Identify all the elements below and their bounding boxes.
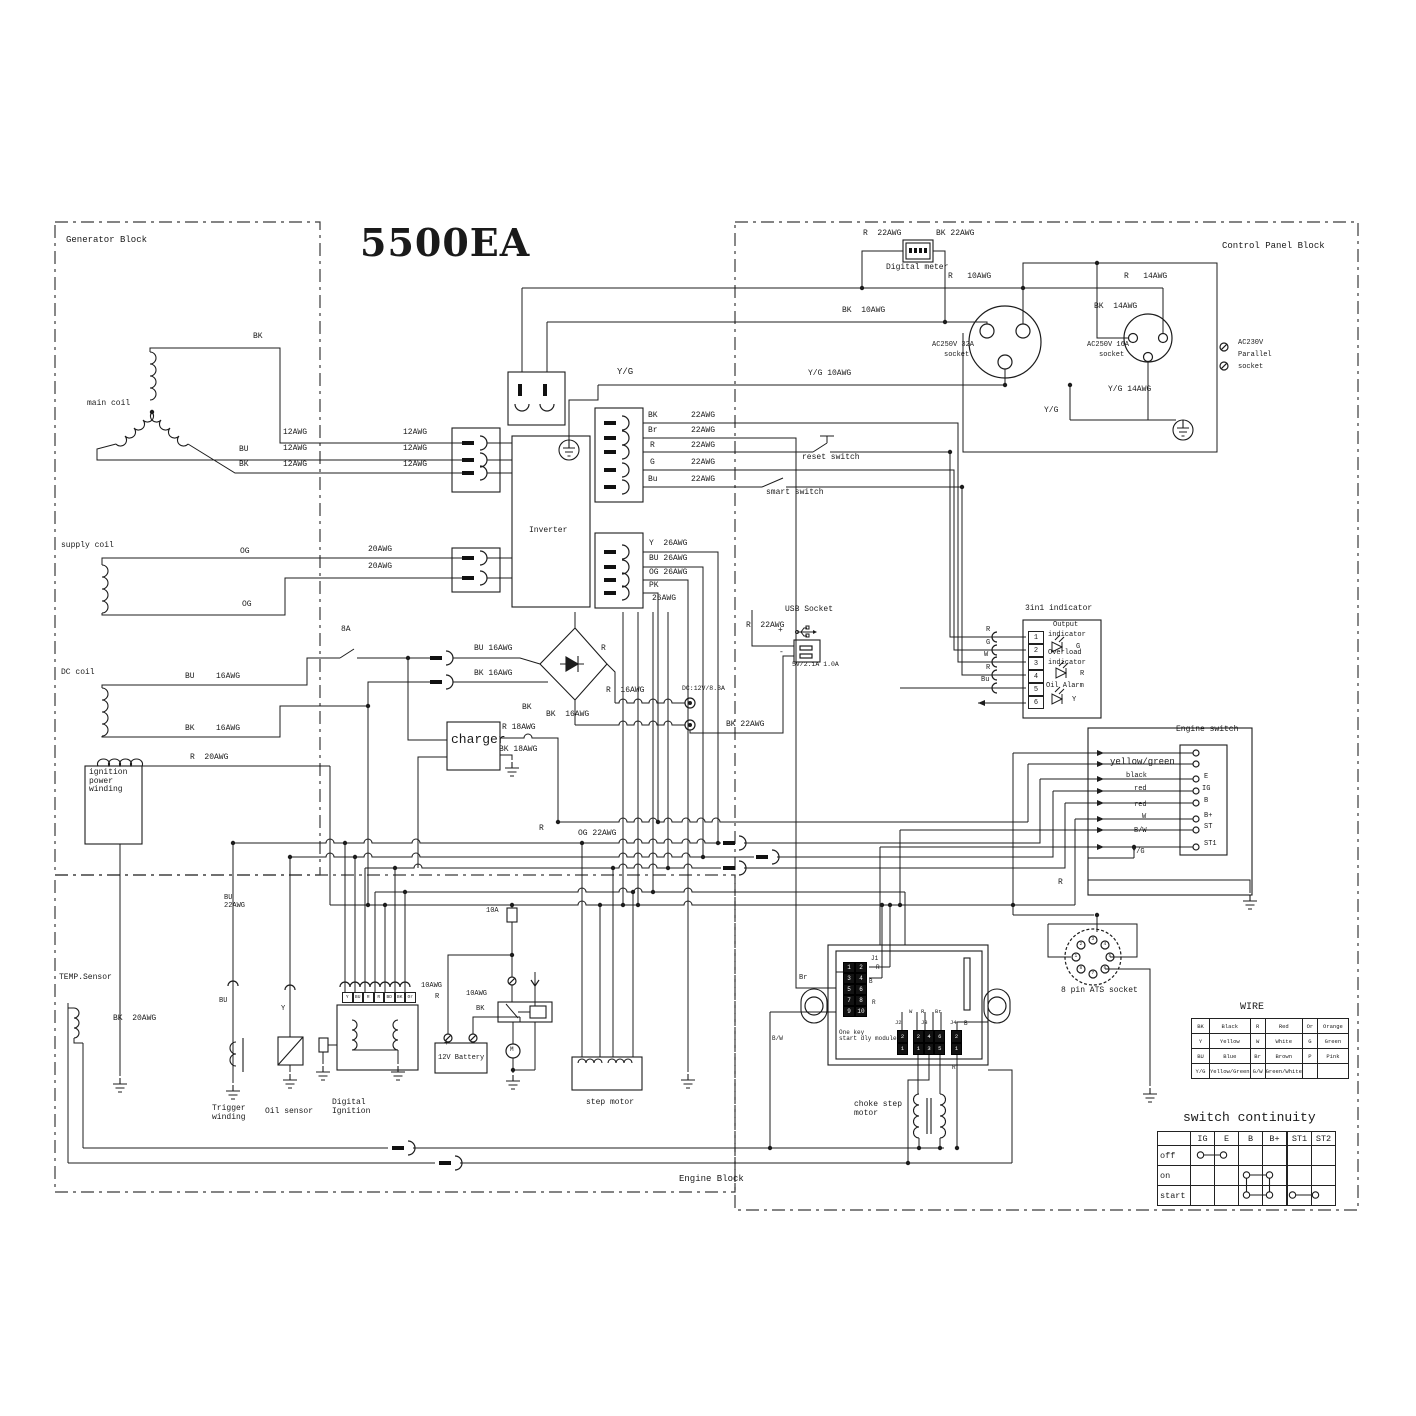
indicator-pins-pin: 3 — [1028, 657, 1044, 670]
j2-pin: 2 — [897, 1030, 908, 1043]
usb-box — [794, 640, 820, 662]
wire-label: BK — [253, 333, 263, 342]
wire-label: indicator — [1048, 660, 1086, 668]
wire-label: 10AWG — [466, 991, 487, 999]
wire-table-cell: Y — [1192, 1034, 1210, 1049]
socket-16a — [1124, 314, 1172, 362]
wire-label: Y — [1072, 697, 1076, 705]
wire-label: 22AWG — [691, 412, 715, 421]
socket-32a-label: AC250V 32A — [932, 342, 974, 350]
wire-label: OG 26AWG — [649, 569, 687, 578]
wire-label: PK — [649, 582, 659, 591]
wire-table-cell: Orange — [1317, 1019, 1348, 1034]
wire-label: ST1 — [1204, 841, 1217, 849]
wire-label: 8A — [341, 626, 351, 635]
wire-label: BK — [522, 704, 532, 713]
continuity-table-title: switch continuity — [1183, 1110, 1316, 1125]
wire-table-cell: Pink — [1317, 1049, 1348, 1064]
wire-label: 20AWG — [368, 546, 392, 555]
wire-label: BU — [239, 446, 249, 455]
panel-earth — [1173, 420, 1193, 440]
wire-table-cell: G — [1302, 1034, 1317, 1049]
wire-label: 22AWG — [691, 476, 715, 485]
wire-label: BU 26AWG — [649, 555, 687, 564]
digital-meter-label: Digital meter — [886, 264, 948, 273]
wire-label: BK — [185, 725, 195, 734]
wire-label: BK — [476, 1006, 484, 1014]
ats-pin-number: 4 — [1104, 943, 1107, 948]
wire-label: R — [986, 665, 990, 673]
wire-label: Y/G 14AWG — [1108, 386, 1151, 395]
wire-table-cell: Brown — [1265, 1049, 1302, 1064]
wire-label: Y/G — [617, 368, 633, 378]
wire-label: Bu — [981, 677, 989, 685]
wire-label: J4 — [950, 1020, 957, 1026]
wire-label: R — [601, 645, 606, 654]
wire-label: R 22AWG — [863, 230, 901, 239]
wire-label: - — [471, 1040, 476, 1049]
wire-table-cell: White — [1265, 1034, 1302, 1049]
continuity-row-label: on — [1158, 1166, 1191, 1186]
wire-label: R — [952, 1065, 956, 1071]
indicator-pins-pin: 6 — [1028, 696, 1044, 709]
wire-label: R 16AWG — [606, 687, 644, 696]
wire-label: M — [510, 1047, 514, 1053]
wire-label: BK 22AWG — [936, 230, 974, 239]
continuity-cell — [1239, 1146, 1263, 1166]
j3-pin: 4 — [924, 1030, 935, 1043]
wire-label: B/W — [772, 1036, 783, 1042]
wire-label: 12AWG — [403, 461, 427, 470]
continuity-cell — [1287, 1146, 1312, 1166]
wire-label: 12AWG — [403, 429, 427, 438]
continuity-cell — [1215, 1146, 1239, 1166]
wire-label: R — [876, 965, 880, 971]
indicator-pins-pin: 2 — [1028, 644, 1044, 657]
continuity-cell — [1287, 1186, 1312, 1206]
control-panel-block-label: Control Panel Block — [1222, 241, 1325, 251]
wire-label: BK — [648, 412, 658, 421]
wire-label: B — [1204, 798, 1208, 806]
wire-label: R — [1058, 879, 1063, 888]
wire-label: 26AWG — [652, 595, 676, 604]
continuity-cell — [1263, 1146, 1288, 1166]
continuity-header-cell: ST2 — [1312, 1132, 1336, 1146]
wire-table-cell: Black — [1210, 1019, 1251, 1034]
j1-pin: 8 — [855, 995, 867, 1006]
j3-pin: 3 — [924, 1043, 935, 1056]
continuity-cell — [1191, 1166, 1215, 1186]
wire-label: W — [1142, 814, 1146, 822]
wire-table-cell: R — [1250, 1019, 1265, 1034]
j3-pin: 1 — [913, 1043, 924, 1056]
indicator-pins-pin: 5 — [1028, 683, 1044, 696]
wire-label: Y 26AWG — [649, 540, 687, 549]
indicator-pins-pin: 4 — [1028, 670, 1044, 683]
continuity-header-cell: ST1 — [1287, 1132, 1312, 1146]
wire-label: W — [909, 1009, 912, 1015]
wire-label: R — [986, 627, 990, 635]
wire-label: + — [444, 1040, 449, 1049]
temp-sensor-label: TEMP.Sensor — [59, 974, 112, 983]
parallel-socket-label: AC230V — [1238, 340, 1263, 348]
wire-label: BU 22AWG — [224, 895, 245, 910]
di-pins-pin: R — [363, 992, 374, 1003]
continuity-cell — [1287, 1166, 1312, 1186]
wire-label: Y/G — [1132, 849, 1145, 857]
inverter-box — [512, 436, 590, 607]
j3-pin: 5 — [934, 1043, 945, 1056]
di-pins-pin: Y — [342, 992, 353, 1003]
j4-pin: 2 — [951, 1030, 962, 1043]
wire-label: socket — [1099, 352, 1124, 360]
wire-table-cell: Yellow — [1210, 1034, 1251, 1049]
usb-socket-label: USB Socket — [785, 606, 833, 615]
wire-label: Br — [935, 1009, 942, 1015]
wire-label: 22AWG — [691, 427, 715, 436]
wire-label: G — [650, 459, 655, 468]
wire-label: BK 16AWG — [474, 670, 512, 679]
wire-label: 20AWG — [368, 563, 392, 572]
step-motor-label: step motor — [586, 1099, 634, 1108]
led-icons — [1052, 635, 1068, 704]
continuity-cell — [1312, 1146, 1336, 1166]
oil-sensor-label: Oil sensor — [265, 1108, 313, 1117]
fuse-10a — [507, 908, 517, 922]
wire-label: Bu — [648, 476, 658, 485]
ats-pin-number: 6 — [1104, 967, 1107, 972]
wire-table-cell: W — [1250, 1034, 1265, 1049]
wire-label: R 20AWG — [190, 754, 228, 763]
wire-label: Output — [1053, 622, 1078, 630]
j1-pin: 4 — [855, 973, 867, 984]
ats-socket-label: 8 pin ATS socket — [1061, 987, 1138, 996]
wire-label: 16AWG — [216, 673, 240, 682]
wire-label: E — [1204, 774, 1208, 782]
wire-label: R — [435, 994, 439, 1002]
inverter-label: Inverter — [529, 527, 567, 536]
wire-label: R — [921, 1009, 924, 1015]
j1-pin: 2 — [855, 962, 867, 973]
ground-symbols — [113, 420, 1257, 1102]
wire-table-cell — [1302, 1064, 1317, 1079]
wire-table-cell: Yellow/Green — [1210, 1064, 1251, 1079]
block-borders — [55, 222, 1358, 1210]
wire-label: red — [1134, 786, 1147, 794]
wiring-diagram: 5500EA Generator Block Control Panel Blo… — [0, 0, 1416, 1416]
wire-label: R — [650, 442, 655, 451]
j1-pin: 7 — [843, 995, 855, 1006]
wire-label: B+ — [1204, 813, 1212, 821]
wire-label: BK 18AWG — [499, 746, 537, 755]
ats-pin-number: 8 — [1080, 967, 1083, 972]
continuity-cell — [1215, 1166, 1239, 1186]
wire-label: BK 10AWG — [842, 307, 885, 316]
wire-label: BU 16AWG — [474, 645, 512, 654]
wire-table-cell: Y/G — [1192, 1064, 1210, 1079]
generator-block-label: Generator Block — [66, 235, 147, 245]
wire-label: Parallel — [1238, 352, 1272, 360]
wire-label: R 10AWG — [948, 273, 991, 282]
wire-label: B — [869, 979, 873, 985]
wire-table-cell: Red — [1265, 1019, 1302, 1034]
wire-label: yellow/green — [1110, 758, 1175, 768]
wire-label: 12AWG — [283, 429, 307, 438]
wire-label: B/W — [1134, 828, 1147, 836]
inverter-earth — [559, 440, 579, 460]
engine-switch-label: Engine switch — [1176, 726, 1238, 735]
start-module-label: One key start dly module — [839, 1030, 897, 1043]
choke-motor-label: choke step motor — [854, 1101, 902, 1118]
wire-label: 10AWG — [421, 983, 442, 991]
ats-pin-number: 1 — [1075, 955, 1078, 960]
wire-table-cell: BK — [1192, 1019, 1210, 1034]
wire-label: 16AWG — [216, 725, 240, 734]
wire-label: Y — [281, 1006, 285, 1014]
continuity-header-cell: E — [1215, 1132, 1239, 1146]
wire-label: Y/G — [1044, 407, 1058, 416]
wire-label: - — [779, 649, 784, 658]
charger-label: charger — [451, 733, 506, 747]
trigger-winding-label: Trigger winding — [212, 1105, 246, 1122]
wire-label: 22AWG — [691, 459, 715, 468]
continuity-header-cell: B+ — [1263, 1132, 1288, 1146]
switch-continuity-table: IGEBB+ST1ST2offonstart — [1157, 1131, 1336, 1206]
wire-label: socket — [944, 352, 969, 360]
wire-label: OG — [240, 548, 250, 557]
continuity-header-cell: B — [1239, 1132, 1263, 1146]
wire-label: Br — [799, 975, 807, 983]
wire-table-cell: Or — [1302, 1019, 1317, 1034]
wires — [68, 251, 1250, 1163]
continuity-header-cell — [1158, 1132, 1191, 1146]
j3-pin: 6 — [934, 1030, 945, 1043]
wire-label: 10A — [486, 908, 499, 916]
digital-ignition-label: Digital Ignition — [332, 1099, 370, 1116]
wire-table-cell: Green — [1317, 1034, 1348, 1049]
continuity-cell — [1312, 1186, 1336, 1206]
continuity-cell — [1263, 1166, 1288, 1186]
ats-pin-number: 2 — [1080, 943, 1083, 948]
di-pins-pin: BU — [353, 992, 364, 1003]
j1-pin: 6 — [855, 984, 867, 995]
wire-label: R — [539, 825, 544, 834]
wire-label: 12AWG — [283, 445, 307, 454]
wire-label: + — [778, 627, 783, 636]
wire-label: R — [1080, 671, 1084, 679]
wire-table-cell — [1317, 1064, 1348, 1079]
wire-label: indicator — [1048, 632, 1086, 640]
ats-pin-number: 7 — [1092, 972, 1095, 977]
wire-label: socket — [1238, 364, 1263, 372]
rectifier-bridge — [540, 628, 607, 700]
wire-label: BK 22AWG — [726, 721, 764, 730]
di-pins-pin: BK — [395, 992, 406, 1003]
ats-pin-number: 5 — [1109, 955, 1112, 960]
continuity-cell — [1312, 1166, 1336, 1186]
wire-label: 12AWG — [283, 461, 307, 470]
wire-table-cell: G/W — [1250, 1064, 1265, 1079]
socket-32a — [969, 306, 1041, 378]
smart-switch-label: smart switch — [766, 489, 824, 498]
wire-label: R — [872, 1000, 876, 1006]
continuity-cell — [1263, 1186, 1288, 1206]
reset-switch-label: reset switch — [802, 454, 860, 463]
di-pins-pin: BD — [384, 992, 395, 1003]
connector-glyphs — [228, 248, 1104, 1170]
wire-label: R 18AWG — [502, 724, 536, 733]
continuity-cell — [1191, 1146, 1215, 1166]
diagram-title: 5500EA — [360, 220, 530, 265]
wire-color-table: BKBlackRRedOrOrangeYYellowWWhiteGGreenBU… — [1191, 1018, 1349, 1079]
wire-label: BK 20AWG — [113, 1015, 156, 1024]
wire-label: Oil Alarm — [1046, 683, 1084, 691]
parallel-socket-screw — [1220, 343, 1228, 351]
wire-label: OG 22AWG — [578, 830, 616, 839]
wire-label: red — [1134, 802, 1147, 810]
wire-label: Y/G 10AWG — [808, 370, 851, 379]
continuity-cell — [1239, 1166, 1263, 1186]
usb-icon — [796, 626, 814, 637]
wire-label: OG — [242, 601, 252, 610]
wire-label: Overload — [1048, 650, 1082, 658]
wire-label: IG — [1202, 786, 1210, 794]
wire-table-cell: P — [1302, 1049, 1317, 1064]
digital-ignition-box — [337, 1005, 418, 1070]
socket-16a-label: AC250V 16A — [1087, 342, 1129, 350]
ats-pin-number: 3 — [1092, 938, 1095, 943]
wire-label: B — [964, 1021, 968, 1027]
wire-label: BK — [239, 461, 249, 470]
j4-pin: 1 — [951, 1043, 962, 1056]
wire-table-cell: BU — [1192, 1049, 1210, 1064]
j1-pin: 5 — [843, 984, 855, 995]
continuity-cell — [1191, 1186, 1215, 1206]
j1-pin: 3 — [843, 973, 855, 984]
wire-label: W — [984, 652, 988, 660]
wire-label: 5V/2.1A 1.0A — [792, 661, 839, 668]
j2-pin: 1 — [897, 1043, 908, 1056]
dc-output-label: DC:12V/8.3A — [682, 685, 725, 692]
wire-label: G — [986, 640, 990, 648]
wire-label: J1 — [871, 956, 878, 962]
j1-pin: 10 — [855, 1006, 867, 1017]
battery-label: 12V Battery — [438, 1055, 484, 1063]
wire-table-cell: Blue — [1210, 1049, 1251, 1064]
di-pins-pin: R — [374, 992, 385, 1003]
wire-table-cell: Green/White — [1265, 1064, 1302, 1079]
wire-label: BK 14AWG — [1094, 303, 1137, 312]
wire-label: BK 16AWG — [546, 711, 589, 720]
main-coil-label: main coil — [87, 400, 130, 409]
j1-pin: 9 — [843, 1006, 855, 1017]
continuity-cell — [1215, 1186, 1239, 1206]
wire-label: BU — [219, 998, 227, 1006]
wire-label: BU — [185, 673, 195, 682]
indicator-label: 3in1 indicator — [1025, 605, 1092, 614]
j1-pin: 1 — [843, 962, 855, 973]
continuity-row-label: off — [1158, 1146, 1191, 1166]
j3-pin: 2 — [913, 1030, 924, 1043]
wire-label: 12AWG — [403, 445, 427, 454]
wire-label: Br — [648, 427, 658, 436]
wire-table-title: WIRE — [1240, 1002, 1264, 1013]
wire-label: 22AWG — [691, 442, 715, 451]
engine-block-label: Engine Block — [679, 1174, 744, 1184]
wire-table-cell: Br — [1250, 1049, 1265, 1064]
indicator-pins-pin: 1 — [1028, 631, 1044, 644]
wire-label: R 14AWG — [1124, 273, 1167, 282]
continuity-cell — [1239, 1186, 1263, 1206]
di-pins-pin: Or — [405, 992, 416, 1003]
wire-label: J2 — [895, 1020, 902, 1026]
ignition-winding-label: ignition power winding — [89, 769, 127, 795]
dc-coil-label: DC coil — [61, 669, 95, 678]
wire-label: ST — [1204, 824, 1212, 832]
supply-coil-label: supply coil — [61, 542, 114, 551]
wire-label: black — [1126, 773, 1147, 781]
continuity-row-label: start — [1158, 1186, 1191, 1206]
continuity-header-cell: IG — [1191, 1132, 1215, 1146]
wire-label: J3 — [921, 1020, 928, 1026]
